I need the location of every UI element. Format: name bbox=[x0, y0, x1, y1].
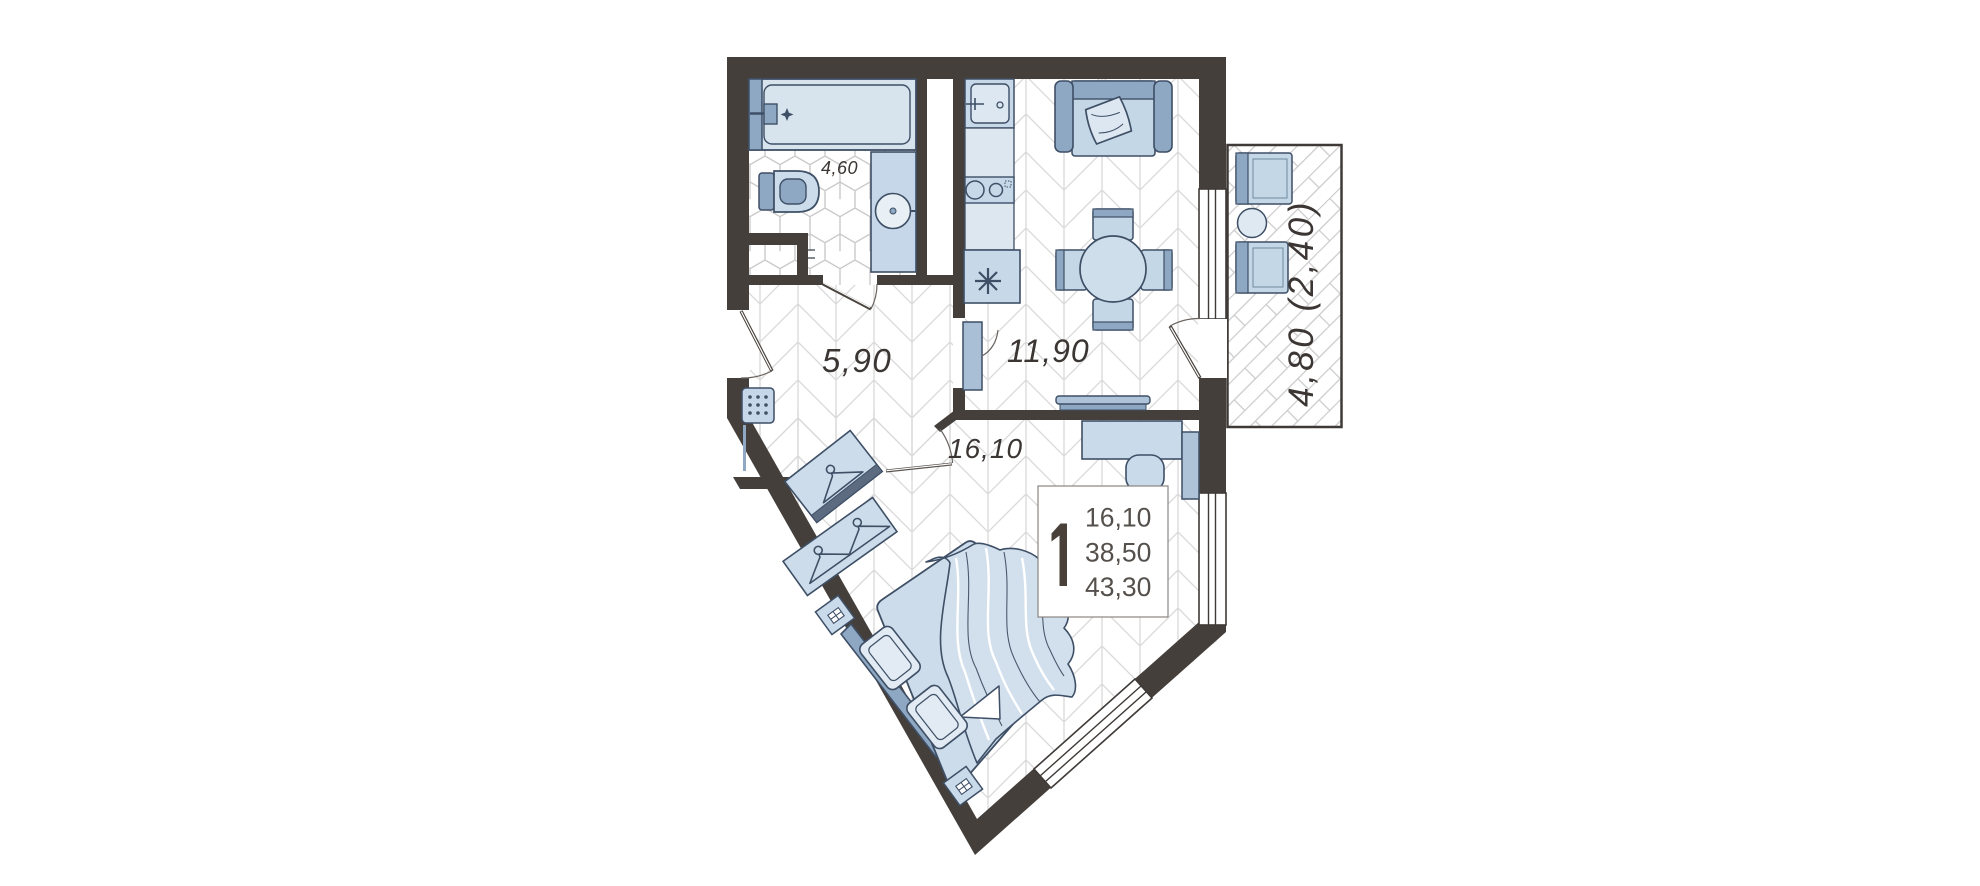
svg-text:16,10: 16,10 bbox=[1085, 503, 1151, 533]
svg-text:4,80 (2,40): 4,80 (2,40) bbox=[1282, 199, 1321, 407]
svg-text:11,90: 11,90 bbox=[1007, 333, 1090, 369]
svg-text:43,30: 43,30 bbox=[1085, 572, 1151, 602]
svg-text:5,90: 5,90 bbox=[822, 342, 892, 379]
svg-text:16,10: 16,10 bbox=[948, 433, 1023, 464]
svg-text:38,50: 38,50 bbox=[1085, 538, 1151, 568]
svg-text:4,60: 4,60 bbox=[821, 158, 858, 178]
